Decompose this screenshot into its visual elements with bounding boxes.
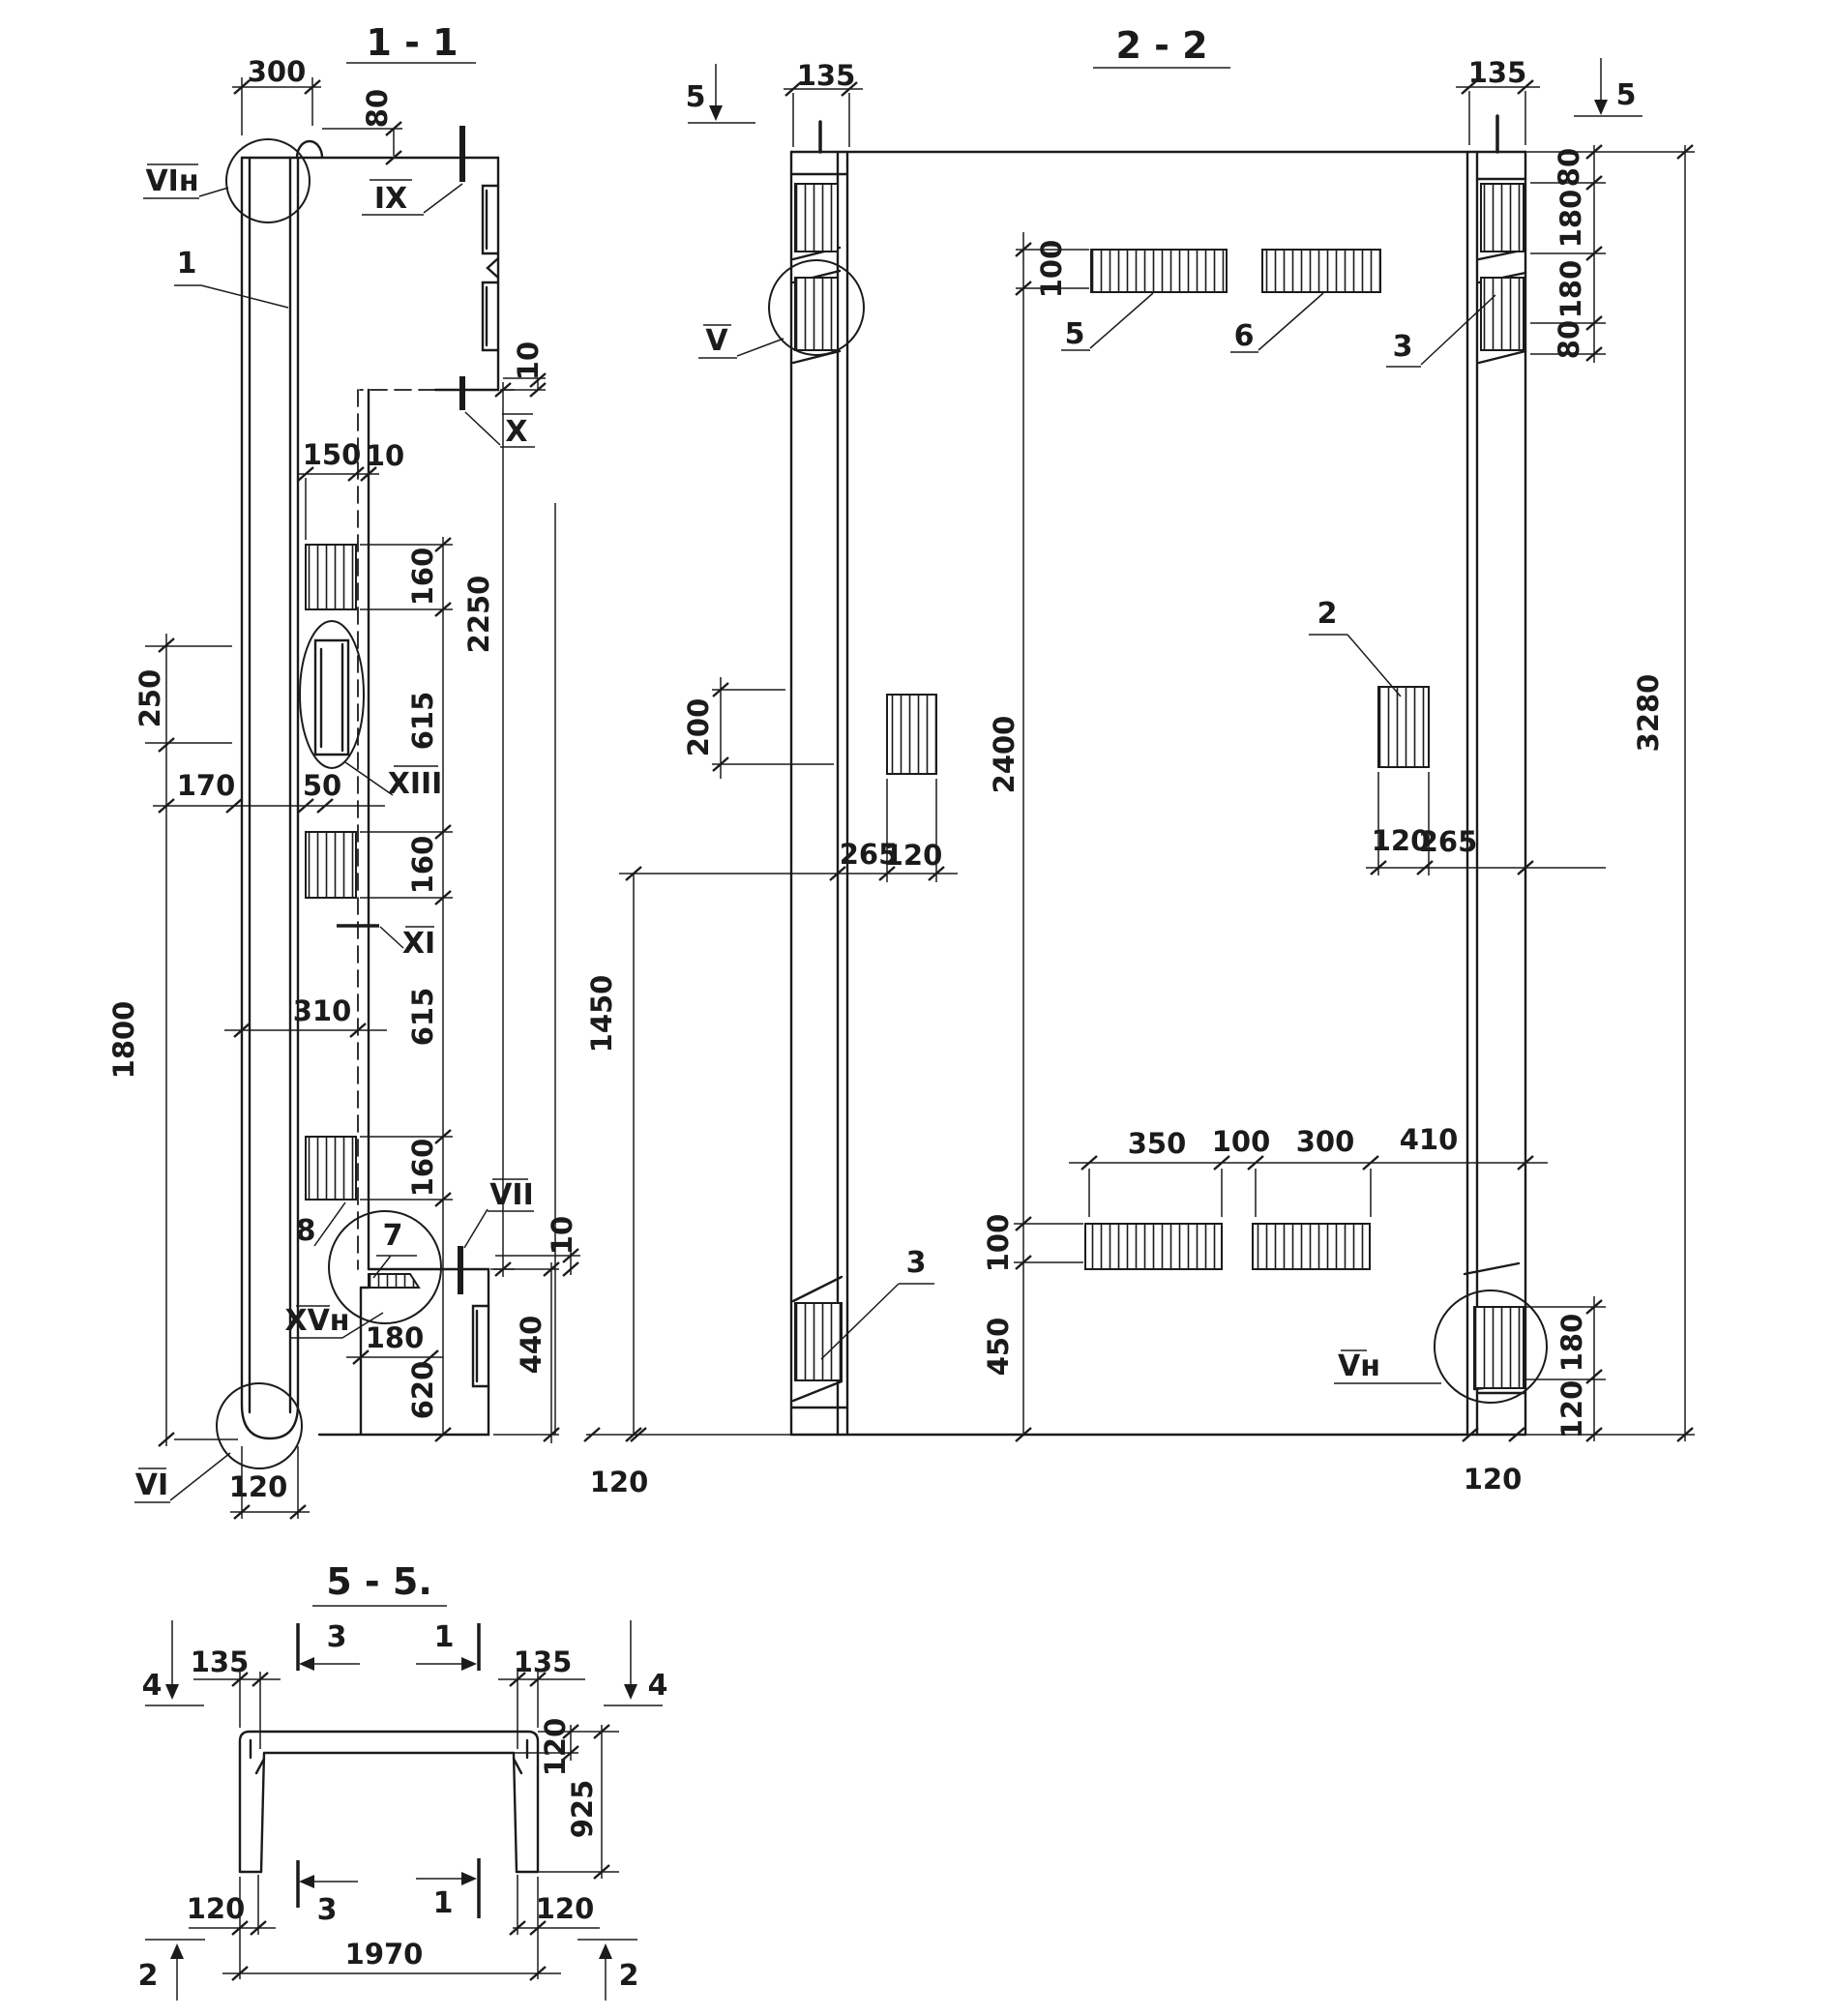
dim-135-right: 135	[1468, 56, 1527, 89]
section-1-1-view: 1 - 1 300 80 10 150 10 160 615 160 615 1…	[107, 21, 580, 1519]
dim-250: 250	[133, 669, 166, 728]
callout-xi: XI	[402, 927, 435, 961]
dim-180-c: 180	[1555, 1314, 1588, 1373]
dim-120-flange: 120	[539, 1718, 572, 1777]
callout-xiii: XIII	[388, 767, 443, 801]
cut-mark-1-top: 1	[434, 1620, 455, 1654]
dim-1970: 1970	[345, 1938, 424, 1971]
dim-120-bottom-right-55: 120	[536, 1892, 595, 1925]
dim-615-a: 615	[406, 692, 439, 751]
dim-310: 310	[293, 994, 352, 1027]
cut-mark-4-left: 4	[142, 1669, 163, 1703]
dim-170: 170	[177, 769, 236, 802]
s11-texts: 1 - 1 300 80 10 150 10 160 615 160 615 1…	[107, 21, 578, 1503]
dim-615-b: 615	[406, 988, 439, 1047]
callout-vii: VII	[489, 1178, 534, 1212]
dim-350: 350	[1128, 1127, 1187, 1160]
callout-6: 6	[1234, 319, 1255, 353]
callout-2: 2	[1317, 597, 1338, 631]
callout-5: 5	[1065, 317, 1085, 351]
dim-80-b: 80	[1553, 320, 1585, 359]
callout-vi-n: VIн	[145, 164, 198, 198]
dim-180-b: 180	[1554, 260, 1587, 319]
dim-135-right-55: 135	[514, 1645, 573, 1678]
s22-hatches	[795, 184, 1524, 1388]
callout-x: X	[505, 415, 527, 449]
dim-120: 120	[229, 1470, 288, 1503]
dim-1450: 1450	[585, 975, 618, 1053]
dim-150: 150	[303, 438, 362, 471]
dim-120-bottom-right: 120	[1464, 1463, 1523, 1496]
s55-geometry	[240, 1732, 538, 1872]
dim-3280: 3280	[1632, 674, 1665, 753]
cut-mark-2-right: 2	[619, 1959, 639, 1993]
cut-mark-5-left: 5	[686, 80, 706, 114]
s22-title: 2 - 2	[1115, 24, 1207, 67]
s11-keyway-hatches	[306, 545, 419, 1288]
section-5-5-view: 5 - 5. 135 135 4 4 3 1 120 925 120 120 3…	[138, 1560, 668, 2001]
cut-mark-4-right: 4	[648, 1669, 668, 1703]
dim-200: 200	[682, 698, 715, 757]
dim-2400: 2400	[988, 716, 1021, 794]
dim-450: 450	[982, 1318, 1015, 1377]
dim-100-top: 100	[1035, 240, 1068, 299]
dim-120-bottom-left-55: 120	[187, 1892, 246, 1925]
dim-100-bottom: 100	[982, 1214, 1015, 1273]
dim-300: 300	[248, 55, 307, 88]
s11-title: 1 - 1	[366, 21, 458, 64]
dim-80-a: 80	[1553, 148, 1585, 187]
cut-mark-3-bottom: 3	[317, 1893, 338, 1927]
dim-135-left-55: 135	[191, 1645, 250, 1678]
dim-160-b: 160	[406, 836, 439, 895]
callout-3-left: 3	[906, 1246, 927, 1280]
dim-620: 620	[406, 1361, 439, 1420]
callout-8: 8	[296, 1214, 316, 1248]
s55-title: 5 - 5.	[326, 1560, 432, 1603]
dim-265-right: 265	[1419, 825, 1478, 858]
dim-925: 925	[566, 1780, 599, 1839]
dim-10-head: 10	[512, 341, 545, 380]
callout-vi: VI	[135, 1468, 168, 1502]
dim-1800: 1800	[107, 1001, 140, 1080]
dim-410: 410	[1400, 1123, 1459, 1156]
dim-440: 440	[515, 1316, 548, 1375]
drawing-svg: 1 - 1 300 80 10 150 10 160 615 160 615 1…	[0, 0, 1835, 2016]
dim-120-bottom-left: 120	[590, 1466, 649, 1498]
dim-80: 80	[361, 89, 394, 128]
section-2-2-view: 2 - 2 135 135 5 5 80 180 180 80 3280 100…	[555, 24, 1695, 1498]
dim-100-mid: 100	[1212, 1125, 1271, 1158]
dim-180-a: 180	[1554, 190, 1587, 249]
dim-120-left: 120	[884, 839, 943, 872]
dim-160-a: 160	[406, 548, 439, 607]
callout-v: V	[705, 324, 728, 358]
dim-135-left: 135	[797, 59, 856, 92]
dim-180: 180	[366, 1321, 425, 1354]
callout-ix: IX	[374, 182, 407, 216]
dim-300: 300	[1296, 1125, 1355, 1158]
callout-3-right: 3	[1393, 330, 1413, 364]
callout-xv-n: XVн	[284, 1304, 349, 1338]
cut-mark-3-top: 3	[327, 1620, 347, 1654]
callout-v-n: Vн	[1338, 1349, 1380, 1383]
dim-160-c: 160	[406, 1139, 439, 1198]
callout-1: 1	[177, 247, 197, 281]
dim-120-right-bottom: 120	[1555, 1380, 1588, 1439]
dim-2250: 2250	[462, 576, 495, 654]
callout-7: 7	[383, 1219, 403, 1253]
dim-50: 50	[303, 769, 341, 802]
dim-10-foot: 10	[546, 1216, 578, 1255]
cut-mark-1-bottom: 1	[433, 1886, 454, 1920]
cut-mark-5-right: 5	[1616, 78, 1637, 112]
engineering-drawing: 1 - 1 300 80 10 150 10 160 615 160 615 1…	[0, 0, 1835, 2016]
s11-geometry	[242, 141, 498, 1438]
cut-mark-2-left: 2	[138, 1959, 159, 1993]
dim-10-web: 10	[366, 439, 404, 472]
